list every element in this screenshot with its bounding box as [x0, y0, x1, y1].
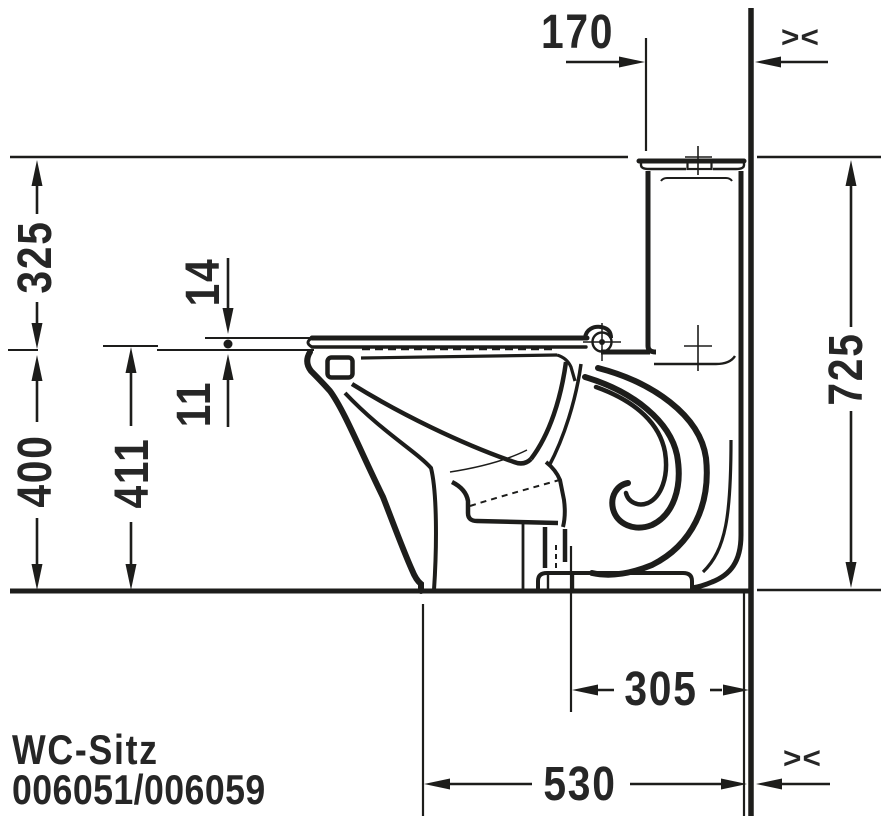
dim-325-label: 325 [9, 220, 62, 293]
dim-400-label: 400 [9, 434, 62, 507]
product-codes: 006051/006059 [12, 767, 266, 813]
dimension-305: 305 [572, 663, 749, 716]
dim-411-arrow-down [126, 564, 137, 590]
siphon-jet-channel [452, 482, 558, 523]
product-caption: WC-Sitz 006051/006059 [12, 727, 266, 813]
dim-530-arrow-left [424, 779, 450, 790]
dim-14-arrow-down [223, 308, 234, 334]
rim-top-line [361, 355, 557, 358]
dim-11-arrow-up [223, 354, 234, 380]
dim-325-arrow-up [32, 160, 43, 186]
tank-lid-joint-line [661, 178, 732, 181]
trap-hook-inner [596, 387, 666, 504]
dim-wall-arrow-left [756, 779, 782, 790]
dim-reference-dot [224, 340, 233, 349]
bowl-outer-front-profile [307, 352, 421, 591]
dimension-725: 725 [820, 160, 873, 588]
toilet-bowl [307, 352, 581, 591]
trap-inlet-channel [546, 462, 565, 527]
dim-530-label: 530 [543, 758, 616, 811]
dimension-400: 400 [9, 355, 62, 590]
dimension-411: 411 [106, 347, 159, 590]
dim-11-label: 11 [168, 381, 221, 428]
dimension-530: 530 [424, 758, 830, 811]
dim-411-label: 411 [106, 438, 159, 509]
dim-725-arrow-up [846, 160, 857, 186]
dim-725-label: 725 [820, 332, 873, 405]
dim-400-arrow-up [32, 355, 43, 381]
rim-channel-front-section [328, 358, 353, 378]
dim-170-label: 170 [541, 6, 614, 59]
seat-front-edge [308, 338, 312, 347]
tank-front-face [648, 171, 656, 352]
hidden-trap-dashed-arc [470, 479, 563, 506]
toilet-trapway [452, 368, 707, 591]
dim-411-arrow-up [126, 347, 137, 373]
wc-side-section-drawing: 170 >< 325 400 411 14 11 [0, 0, 883, 817]
flange-detail-ticks [548, 573, 573, 590]
dim-170-arrow-left [755, 57, 781, 68]
tank-and-pedestal-back [692, 171, 741, 588]
dim-170-arrow-right [619, 57, 645, 68]
dim-400-arrow-down [32, 564, 43, 590]
dim-305-label: 305 [624, 663, 697, 716]
reference-lines [8, 8, 881, 816]
technical-drawing-page: 170 >< 325 400 411 14 11 [0, 0, 883, 817]
trap-outer-sweep [592, 368, 707, 575]
dim-725-arrow-down [846, 562, 857, 588]
dimension-14-11: 14 11 [168, 258, 234, 428]
dim-14-label: 14 [177, 258, 230, 307]
dim-325-arrow-down [32, 323, 43, 349]
dim-305-arrow-left [572, 685, 598, 696]
variable-gap-symbol-bottom: >< [783, 741, 822, 775]
dimension-325: 325 [9, 160, 62, 349]
variable-gap-symbol-top: >< [781, 20, 820, 54]
tank-bottom-line [654, 356, 735, 364]
